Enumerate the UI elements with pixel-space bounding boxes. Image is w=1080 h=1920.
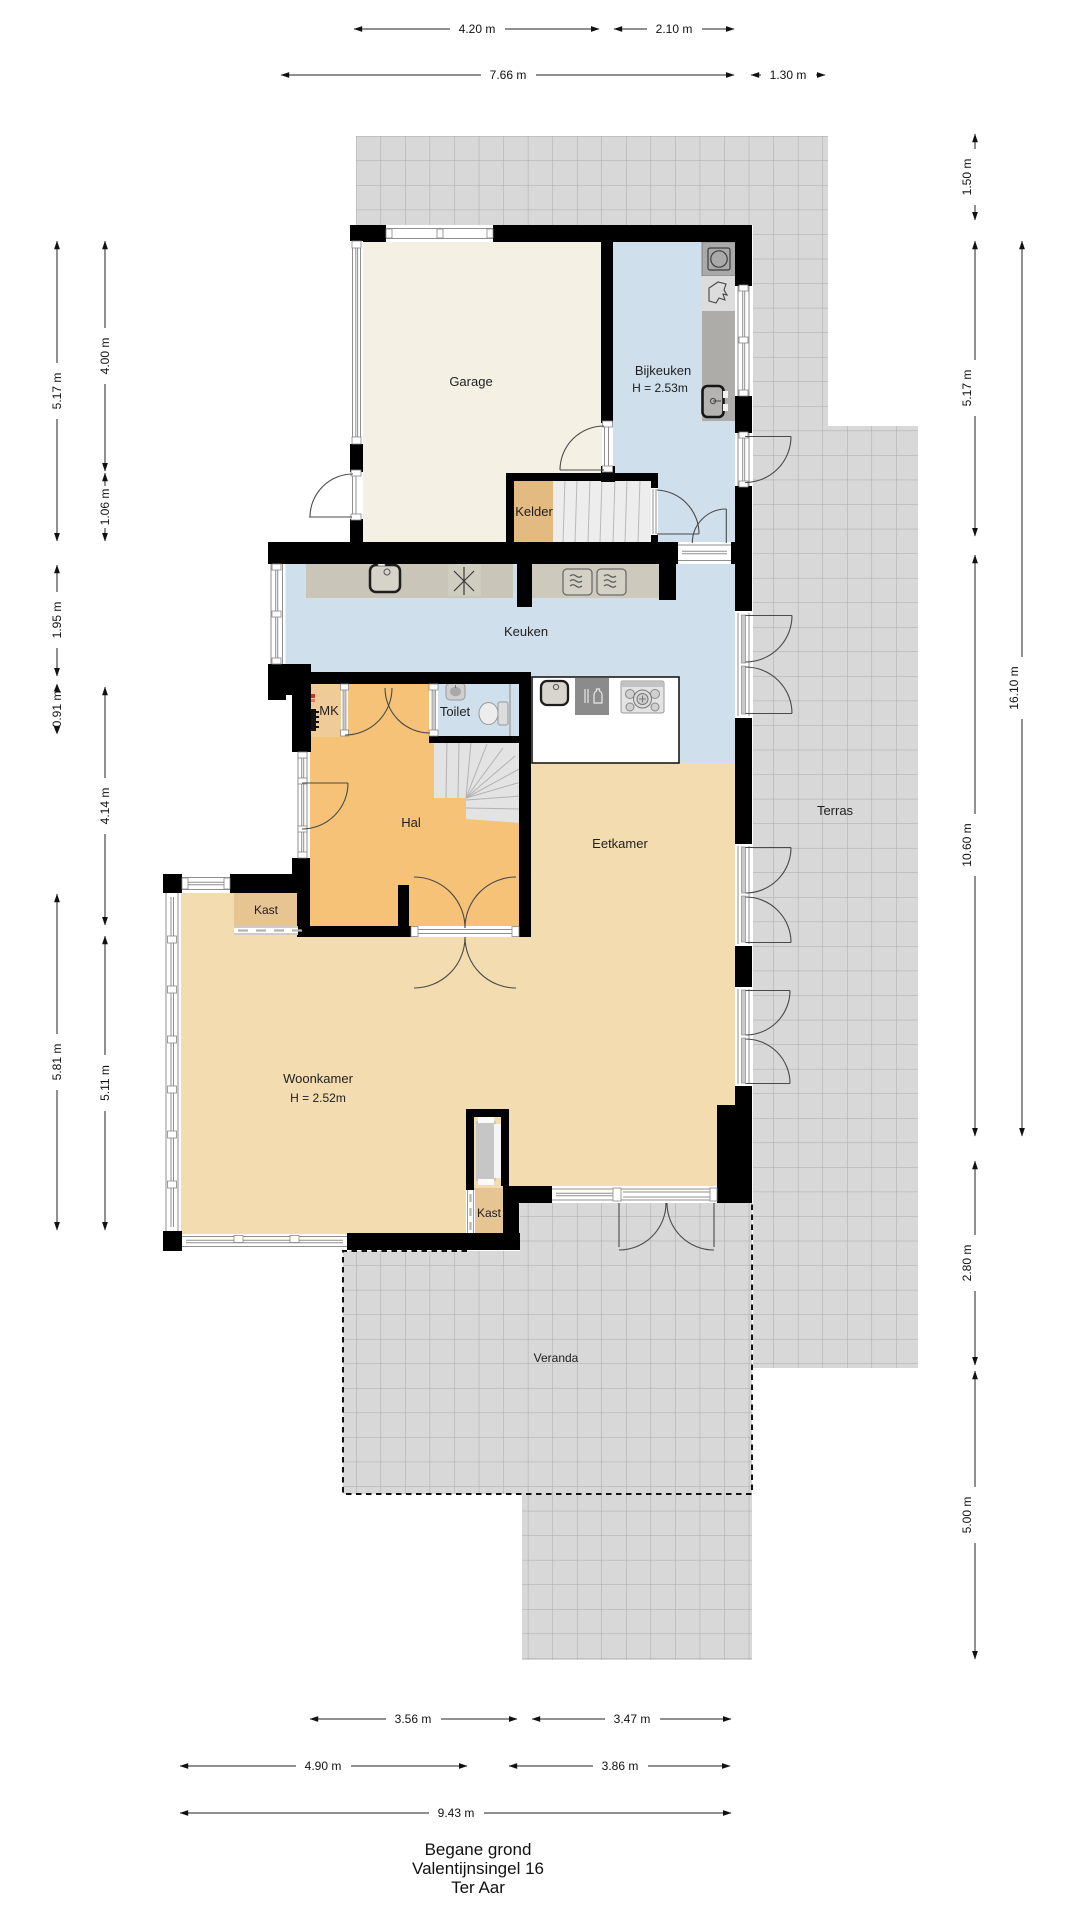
svg-text:4.90 m: 4.90 m xyxy=(305,1759,342,1773)
svg-text:Toilet: Toilet xyxy=(440,704,471,719)
svg-text:5.00 m: 5.00 m xyxy=(960,1497,974,1534)
svg-text:Terras: Terras xyxy=(817,803,854,818)
svg-text:1.95 m: 1.95 m xyxy=(50,602,64,639)
svg-text:9.43 m: 9.43 m xyxy=(438,1806,475,1820)
svg-text:2.10 m: 2.10 m xyxy=(656,22,693,36)
svg-text:Ter Aar: Ter Aar xyxy=(451,1878,505,1897)
svg-text:3.47 m: 3.47 m xyxy=(614,1712,651,1726)
svg-text:4.00 m: 4.00 m xyxy=(98,338,112,375)
svg-text:2.80 m: 2.80 m xyxy=(960,1245,974,1282)
svg-text:16.10 m: 16.10 m xyxy=(1007,666,1021,709)
svg-text:Kast: Kast xyxy=(477,1206,502,1220)
svg-text:Valentijnsingel 16: Valentijnsingel 16 xyxy=(412,1859,544,1878)
svg-text:7.66 m: 7.66 m xyxy=(490,68,527,82)
svg-text:10.60 m: 10.60 m xyxy=(960,823,974,866)
svg-text:H = 2.53m: H = 2.53m xyxy=(632,381,688,395)
svg-text:Eetkamer: Eetkamer xyxy=(592,836,648,851)
svg-text:Kast: Kast xyxy=(254,903,279,917)
svg-text:4.14 m: 4.14 m xyxy=(98,788,112,825)
svg-text:Hal: Hal xyxy=(401,815,421,830)
svg-text:H = 2.52m: H = 2.52m xyxy=(290,1091,346,1105)
svg-text:1.30 m: 1.30 m xyxy=(770,68,807,82)
svg-text:3.86 m: 3.86 m xyxy=(602,1759,639,1773)
svg-text:Keuken: Keuken xyxy=(504,624,548,639)
svg-text:5.81 m: 5.81 m xyxy=(50,1044,64,1081)
svg-text:0.91 m: 0.91 m xyxy=(50,691,64,728)
svg-text:5.17 m: 5.17 m xyxy=(960,370,974,407)
svg-text:5.11 m: 5.11 m xyxy=(98,1065,112,1101)
svg-text:MK: MK xyxy=(319,703,339,718)
svg-text:Garage: Garage xyxy=(449,374,492,389)
svg-text:Veranda: Veranda xyxy=(534,1351,579,1365)
svg-text:3.56 m: 3.56 m xyxy=(395,1712,432,1726)
svg-text:1.50 m: 1.50 m xyxy=(960,159,974,196)
svg-text:Bijkeuken: Bijkeuken xyxy=(635,363,691,378)
svg-text:4.20 m: 4.20 m xyxy=(459,22,496,36)
svg-text:1.06 m: 1.06 m xyxy=(98,489,112,526)
svg-text:Kelder: Kelder xyxy=(515,504,553,519)
svg-text:Begane grond: Begane grond xyxy=(425,1840,532,1859)
svg-text:5.17 m: 5.17 m xyxy=(50,373,64,410)
svg-text:Woonkamer: Woonkamer xyxy=(283,1071,354,1086)
